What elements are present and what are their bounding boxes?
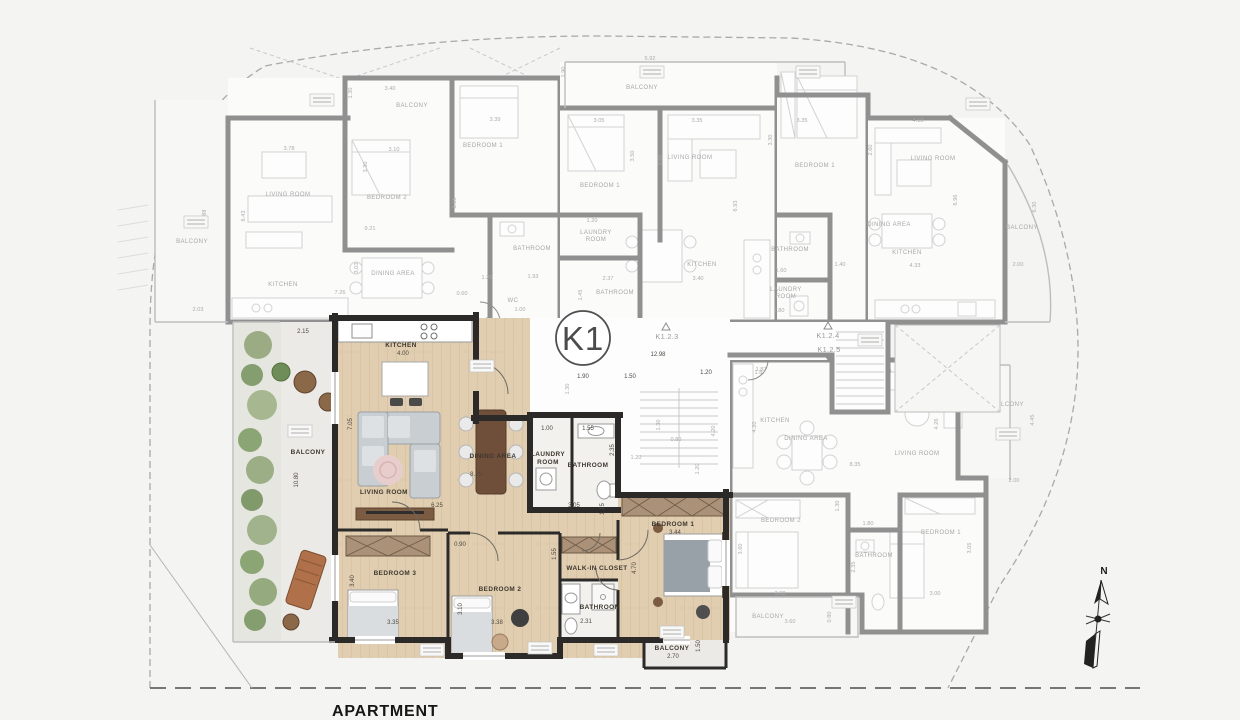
room-label-balcony: BALCONY bbox=[176, 239, 208, 245]
dim: 2.35 bbox=[851, 562, 857, 573]
room-label-kitchen: KITCHEN bbox=[892, 250, 922, 256]
dim: 3.39 bbox=[490, 117, 501, 123]
dim: 1.40 bbox=[835, 262, 846, 268]
wardrobe bbox=[346, 536, 430, 556]
room-label-closet: WALK-IN CLOSET bbox=[566, 565, 627, 572]
dim: 3.10 bbox=[389, 147, 400, 153]
room-label-dining: DINING AREA bbox=[867, 222, 911, 228]
room-label-balcony-top: BALCONY bbox=[396, 103, 428, 109]
dim: 2.35 bbox=[610, 444, 616, 456]
unit-nw: BALCONY 6.88 2.03 BALCONY 3.40 1.30 LIVI… bbox=[155, 78, 562, 322]
kitchen-island bbox=[382, 362, 428, 396]
room-label-bed1: BEDROOM 1 bbox=[580, 183, 620, 189]
dim: 1.30 bbox=[835, 501, 841, 512]
room-label-laundry2: ROOM bbox=[537, 459, 559, 466]
room-label-dining: DINING AREA bbox=[470, 453, 517, 460]
dim: 3.00 bbox=[930, 591, 941, 597]
dim: 3.40 bbox=[385, 86, 396, 92]
dim: 1.00 bbox=[541, 426, 553, 432]
room-label-laundry2: ROOM bbox=[776, 294, 796, 300]
compass-north-arrow-outline bbox=[1100, 580, 1108, 604]
room-label-bed1: BEDROOM 1 bbox=[795, 163, 835, 169]
rug bbox=[373, 455, 403, 485]
dim: 8.25 bbox=[470, 472, 482, 478]
dim: 1.00 bbox=[515, 307, 526, 313]
dim: 3.05 bbox=[568, 503, 580, 509]
room-label-bath-bottom: BATHROOM bbox=[580, 604, 621, 611]
stair-label-mid: K1.2.3 bbox=[655, 332, 678, 341]
room-label-dining: DINING AREA bbox=[784, 436, 828, 442]
washer bbox=[536, 468, 556, 490]
dim: 3.35 bbox=[797, 118, 808, 124]
room-label-balcony-bottom: BALCONY bbox=[752, 614, 784, 620]
dim: 3.30 bbox=[363, 162, 369, 173]
dim: 6.96 bbox=[953, 195, 959, 206]
room-label-living: LIVING ROOM bbox=[668, 155, 713, 161]
dim: 3.30 bbox=[775, 591, 786, 597]
dim: 1.60 bbox=[776, 268, 787, 274]
dim: 4.00 bbox=[397, 351, 409, 357]
dim: 2.37 bbox=[603, 276, 614, 282]
room-label-kitchen: KITCHEN bbox=[760, 418, 790, 424]
dim: 3.05 bbox=[594, 118, 605, 124]
dim: 1.55 bbox=[582, 426, 594, 432]
room-label-bed1: BEDROOM 1 bbox=[463, 143, 503, 149]
dim: 3.05 bbox=[967, 543, 973, 554]
dim: 0.90 bbox=[454, 542, 466, 548]
dim: 3.15 bbox=[452, 198, 458, 209]
dim: 4.45 bbox=[1030, 415, 1036, 426]
toilet bbox=[565, 618, 577, 634]
dim: 1.30 bbox=[656, 420, 662, 431]
dim: 1.80 bbox=[863, 521, 874, 527]
room-label-dining: DINING AREA bbox=[371, 271, 415, 277]
dim: 1.93 bbox=[528, 274, 539, 280]
dim: 2.00 bbox=[1009, 478, 1020, 484]
dim: 1.90 bbox=[561, 67, 567, 78]
dim: 1.87 bbox=[755, 370, 766, 376]
room-label-bed1: BEDROOM 1 bbox=[652, 521, 695, 528]
dim: 3.35 bbox=[387, 620, 399, 626]
dim: 3.35 bbox=[692, 118, 703, 124]
dim: 4.33 bbox=[910, 263, 921, 269]
room-label-living: LIVING ROOM bbox=[911, 156, 956, 162]
dim: 1.50 bbox=[624, 374, 636, 380]
room-label-living: LIVING ROOM bbox=[360, 489, 408, 496]
dim: 2.60 bbox=[868, 145, 874, 156]
dim: 2.31 bbox=[580, 619, 592, 625]
dim: 1.30 bbox=[565, 384, 571, 395]
dim: 0.60 bbox=[457, 291, 468, 297]
dim: 3.44 bbox=[669, 530, 681, 536]
room-label-laundry: LAUNDRY bbox=[531, 451, 565, 458]
dim: 0.80 bbox=[671, 437, 682, 443]
room-label-bed2: BEDROOM 2 bbox=[761, 518, 801, 524]
dim: 2.00 bbox=[1013, 262, 1024, 268]
unit-ne-mid: BEDROOM 1 3.35 3.30 BATHROOM 1.60 LAUNDR… bbox=[768, 72, 868, 322]
dim: 6.30 bbox=[1032, 202, 1038, 213]
closet-furniture bbox=[562, 537, 616, 553]
room-label-wc: WC bbox=[508, 298, 519, 304]
unit-ne: LIVING ROOM 4.10 2.60 DINING AREA KITCHE… bbox=[867, 118, 1050, 322]
dim: 1.20 bbox=[631, 455, 642, 461]
chair bbox=[492, 634, 508, 650]
dim: 2.15 bbox=[297, 329, 309, 335]
dim: 3.50 bbox=[630, 151, 636, 162]
north-compass: N bbox=[1084, 566, 1110, 668]
unit-ne-balcony-parapet bbox=[1005, 165, 1051, 322]
dim: 1.55 bbox=[552, 548, 558, 560]
unit-nw-balcony-floor bbox=[155, 100, 228, 322]
room-label-bed2: BEDROOM 2 bbox=[367, 195, 407, 201]
dim: 1.25 bbox=[482, 275, 493, 281]
dim: 0.80 bbox=[827, 612, 833, 623]
page-title: APARTMENT bbox=[332, 703, 438, 720]
room-label-balcony-bottom: BALCONY bbox=[655, 645, 690, 652]
dim: 8.35 bbox=[850, 462, 861, 468]
room-label-bath: BATHROOM bbox=[855, 553, 893, 559]
stair-label-down-right: K1.2.5 bbox=[817, 345, 840, 354]
pouf bbox=[696, 605, 710, 619]
floor-plan-page: BALCONY 6.88 2.03 BALCONY 3.40 1.30 LIVI… bbox=[0, 0, 1240, 720]
dim: 4.26 bbox=[934, 419, 940, 430]
dim: 1.20 bbox=[587, 218, 598, 224]
dim: 4.70 bbox=[632, 562, 638, 574]
dim: 1.15 bbox=[600, 503, 606, 515]
room-label-kitchen: KITCHEN bbox=[687, 262, 717, 268]
dining-furniture bbox=[459, 410, 523, 494]
dim: 3.38 bbox=[491, 620, 503, 626]
room-label-bath-top: BATHROOM bbox=[568, 462, 609, 469]
room-label-bed3: BEDROOM 3 bbox=[374, 570, 417, 577]
dim: 1.20 bbox=[695, 464, 701, 475]
dim: 1.45 bbox=[578, 290, 584, 301]
floor-plan-drawing: BALCONY 6.88 2.03 BALCONY 3.40 1.30 LIVI… bbox=[0, 0, 1240, 720]
dim: 12.98 bbox=[650, 352, 666, 358]
dim: 3.60 bbox=[738, 544, 744, 555]
room-label-living: LIVING ROOM bbox=[895, 451, 940, 457]
dim: 6.43 bbox=[241, 211, 247, 222]
dim: 9.21 bbox=[365, 226, 376, 232]
room-label-kitchen: KITCHEN bbox=[268, 282, 298, 288]
room-label-balcony: BALCONY bbox=[626, 85, 658, 91]
pouf bbox=[511, 609, 529, 627]
north-label: N bbox=[1100, 566, 1107, 577]
dim: 1.80 bbox=[774, 308, 785, 314]
dim: 2.03 bbox=[193, 307, 204, 313]
dim: 3.40 bbox=[350, 575, 356, 587]
room-label-bed1: BEDROOM 1 bbox=[921, 530, 961, 536]
room-label-laundry: LAUNDRY bbox=[770, 287, 802, 293]
dim: 5.92 bbox=[645, 56, 656, 62]
dim: 3.10 bbox=[458, 603, 464, 615]
unit-badge-label: K1 bbox=[562, 320, 604, 357]
stair-label-up-right: K1.2.4 bbox=[816, 331, 839, 340]
dim: 4.20 bbox=[752, 422, 758, 433]
room-label-balcony-left: BALCONY bbox=[291, 449, 326, 456]
dim: 3.40 bbox=[693, 276, 704, 282]
dim: 6.25 bbox=[431, 503, 443, 509]
stool bbox=[409, 398, 422, 406]
dim: 3.60 bbox=[785, 619, 796, 625]
dim: 10.80 bbox=[294, 472, 300, 488]
room-label-laundry: LAUNDRY bbox=[580, 230, 612, 236]
room-label-bed2: BEDROOM 2 bbox=[479, 586, 522, 593]
dim: 6.93 bbox=[733, 201, 739, 212]
terrain-hatch-lines bbox=[118, 205, 148, 290]
dim: 1.90 bbox=[577, 374, 589, 380]
room-label-balcony: BALCONY bbox=[1006, 225, 1038, 231]
dim: 3.03 bbox=[354, 263, 360, 274]
stool bbox=[390, 398, 403, 406]
dim: 1.20 bbox=[700, 370, 712, 376]
dim: 4.10 bbox=[913, 118, 924, 124]
dim: 1.50 bbox=[696, 640, 702, 652]
dim: 7.05 bbox=[348, 418, 354, 430]
dim: 3.30 bbox=[768, 135, 774, 146]
room-label-bath: BATHROOM bbox=[513, 246, 551, 252]
room-label-bath: BATHROOM bbox=[596, 290, 634, 296]
dim: 3.78 bbox=[284, 146, 295, 152]
dim: 2.70 bbox=[667, 654, 679, 660]
dim: 3.55 bbox=[658, 155, 664, 166]
room-label-living: LIVING ROOM bbox=[266, 192, 311, 198]
dim: 4.20 bbox=[711, 426, 717, 437]
room-label-kitchen: KITCHEN bbox=[385, 342, 417, 349]
toilet bbox=[597, 481, 611, 499]
dim: 7.26 bbox=[335, 290, 346, 296]
room-label-laundry2: ROOM bbox=[586, 237, 606, 243]
sink bbox=[352, 324, 372, 338]
room-label-bath: BATHROOM bbox=[771, 247, 809, 253]
dim: 1.30 bbox=[348, 88, 354, 99]
compass-hub bbox=[1095, 616, 1102, 623]
